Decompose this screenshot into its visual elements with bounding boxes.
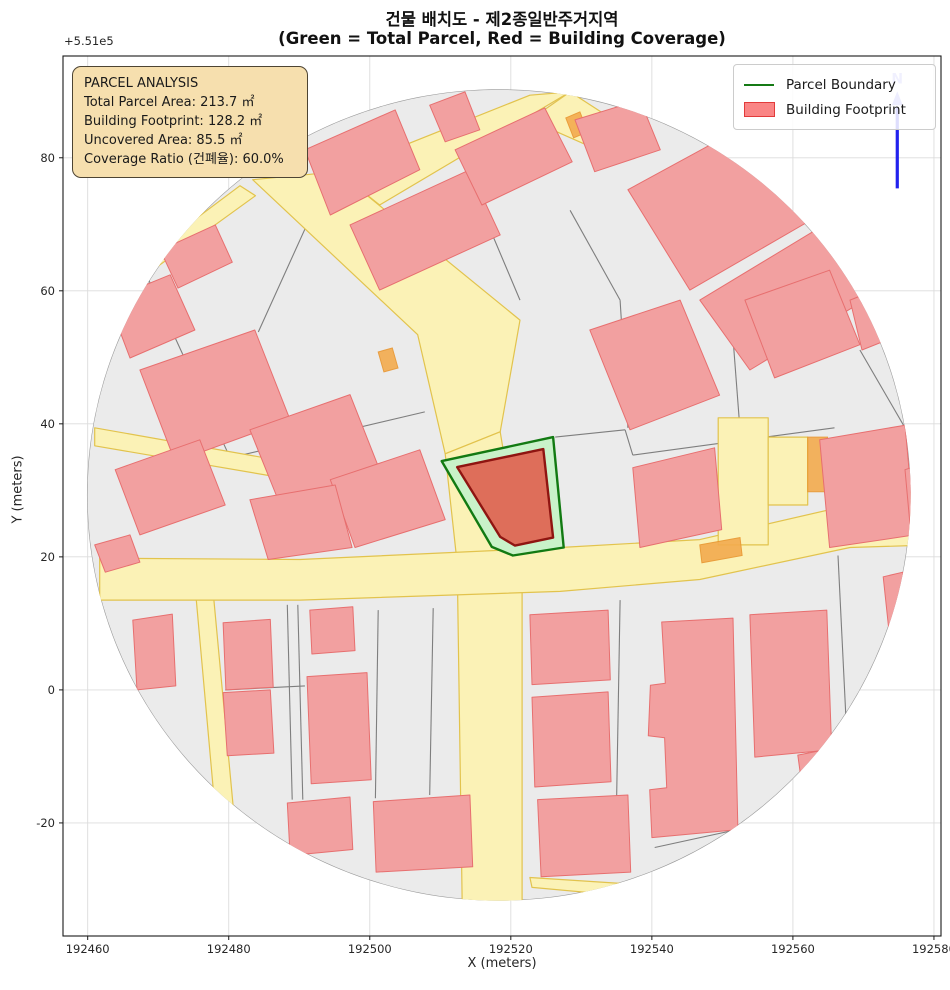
x-tick-label: 192520 xyxy=(489,942,533,956)
building xyxy=(750,610,832,757)
road xyxy=(768,437,808,505)
chart-subtitle: (Green = Total Parcel, Red = Building Co… xyxy=(63,29,941,48)
y-axis-offset-label: +5.51e5 xyxy=(64,34,114,48)
road xyxy=(718,418,768,545)
map-layer xyxy=(87,89,936,904)
building xyxy=(133,614,176,690)
parcel-analysis-total-area: Total Parcel Area: 213.7 ㎡ xyxy=(84,93,296,112)
building xyxy=(905,462,936,548)
y-tick-label: 80 xyxy=(40,151,55,165)
parcel-analysis-title: PARCEL ANALYSIS xyxy=(84,74,296,93)
legend-label-building-footprint: Building Footprint xyxy=(786,102,906,118)
building xyxy=(310,607,355,654)
building xyxy=(287,797,353,856)
y-tick-label: 0 xyxy=(48,683,55,697)
building-footprint-patch-swatch xyxy=(744,102,775,117)
y-tick-label: 20 xyxy=(40,550,55,564)
parcel-boundary-line-swatch xyxy=(744,84,774,86)
building xyxy=(538,795,631,877)
building xyxy=(798,747,845,807)
building xyxy=(223,690,274,756)
y-tick-label: -20 xyxy=(36,816,55,830)
x-tick-label: 192580 xyxy=(912,942,950,956)
x-tick-label: 192560 xyxy=(771,942,815,956)
road xyxy=(100,874,197,896)
x-tick-label: 192480 xyxy=(207,942,251,956)
chart-title: 건물 배치도 - 제2종일반주거지역 xyxy=(63,6,941,30)
figure: N 19246019248019250019252019254019256019… xyxy=(0,0,950,990)
legend-item-building-footprint: Building Footprint xyxy=(744,97,925,122)
building xyxy=(373,795,472,872)
legend-label-parcel-boundary: Parcel Boundary xyxy=(786,77,896,93)
building xyxy=(820,425,915,547)
legend: Parcel Boundary Building Footprint xyxy=(733,64,936,130)
building xyxy=(530,610,610,685)
building xyxy=(903,352,934,428)
y-tick-label: 40 xyxy=(40,417,55,431)
x-tick-label: 192500 xyxy=(348,942,392,956)
y-tick-label: 60 xyxy=(40,284,55,298)
x-axis-label: X (meters) xyxy=(63,956,941,971)
building xyxy=(532,692,611,787)
parcel-analysis-uncovered: Uncovered Area: 85.5 ㎡ xyxy=(84,131,296,150)
legend-item-parcel-boundary: Parcel Boundary xyxy=(744,72,925,97)
x-tick-label: 192540 xyxy=(630,942,674,956)
parcel-analysis-coverage: Coverage Ratio (건폐율): 60.0% xyxy=(84,150,296,169)
parcel-analysis-box: PARCEL ANALYSIS Total Parcel Area: 213.7… xyxy=(72,66,308,178)
x-tick-label: 192460 xyxy=(66,942,110,956)
building xyxy=(307,673,371,784)
parcel-analysis-footprint: Building Footprint: 128.2 ㎡ xyxy=(84,112,296,131)
y-axis-label: Y (meters) xyxy=(11,430,26,550)
building xyxy=(223,619,273,690)
